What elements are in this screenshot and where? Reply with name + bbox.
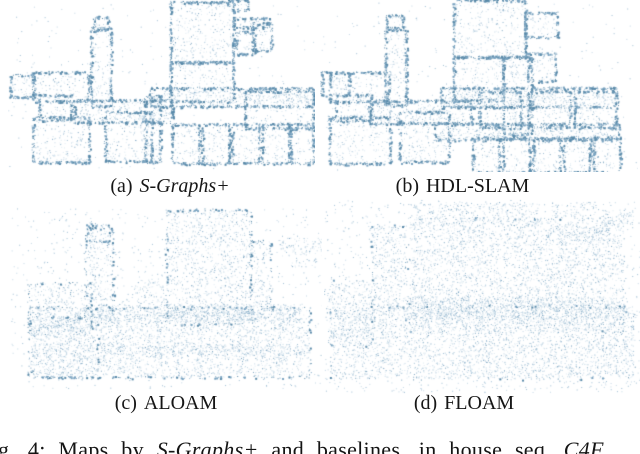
caption-segment-italic: C4F [564,437,604,454]
figure-caption: g. 4: Maps by S-Graphs+ and baselines, i… [0,437,640,454]
pointcloud-map-hdl-slam [320,0,638,172]
pointcloud-map-aloam [10,206,322,390]
panel-method-d: FLOAM [444,392,514,414]
panel-caption-c: (c)ALOAM [10,391,322,415]
panel-label-b: (b) [396,175,419,197]
panel-label-d: (d) [414,392,437,414]
panel-label-c: (c) [115,392,137,414]
pointcloud-map-s-graphs-plus [8,0,315,172]
panel-caption-a: (a)S-Graphs+ [10,174,330,198]
paper-figure: (a)S-Graphs+ (b)HDL-SLAM (c)ALOAM (d)FLO… [0,0,640,454]
caption-segment: g. 4: Maps by [0,437,157,454]
panel-label-a: (a) [110,175,132,197]
pointcloud-map-floam [324,198,640,394]
panel-method-b: HDL-SLAM [426,175,529,197]
panel-caption-d: (d)FLOAM [324,391,604,415]
panel-method-a: S-Graphs+ [140,175,230,197]
panel-method-c: ALOAM [144,392,217,414]
caption-segment-italic: S-Graphs+ [157,437,259,454]
panel-caption-b: (b)HDL-SLAM [320,174,605,198]
caption-segment: and baselines, in house seq. [259,437,564,454]
